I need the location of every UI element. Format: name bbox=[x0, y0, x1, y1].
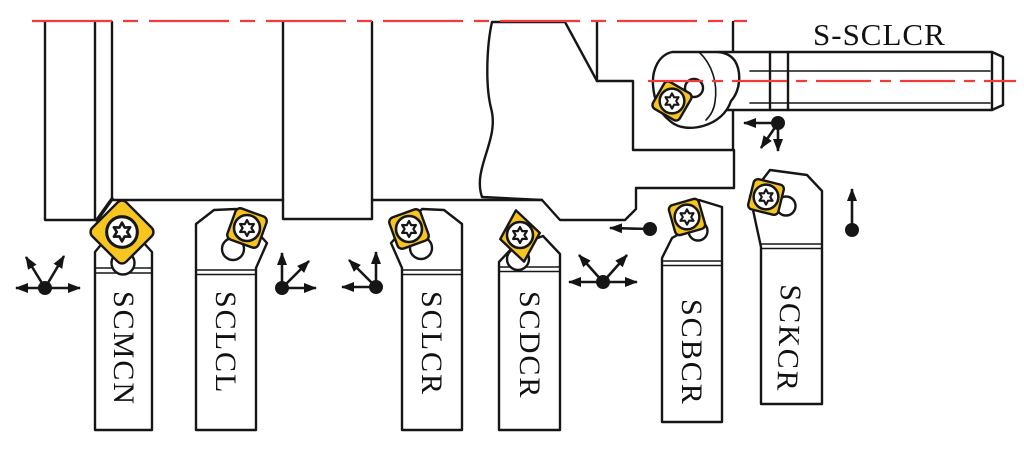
tool-label-sckcr: SCKCR bbox=[770, 284, 807, 393]
torx-screw-icon bbox=[234, 215, 260, 241]
tool-scdcr: SCDCR bbox=[496, 207, 560, 430]
feed-arrows-scmcn bbox=[16, 256, 80, 295]
tool-sckcr: SCKCR bbox=[747, 170, 822, 404]
tool-label-sclcl: SCLCL bbox=[209, 291, 242, 394]
torx-screw-icon bbox=[660, 89, 685, 114]
workpiece-section bbox=[45, 22, 734, 220]
tool-label-sclcr: SCLCR bbox=[415, 291, 448, 396]
feed-arrows-sclcr bbox=[342, 252, 383, 294]
tool-scbcr: SCBCR bbox=[662, 198, 722, 422]
boring-bar-ssclcr bbox=[651, 52, 1003, 128]
torx-screw-icon bbox=[107, 217, 138, 248]
tool-label-scdcr: SCDCR bbox=[513, 291, 546, 399]
feed-arrows-boring bbox=[744, 116, 785, 151]
workpiece-outline bbox=[45, 22, 542, 220]
diagram-canvas: SCMCN SCLCL SCLCR SCDCR bbox=[0, 0, 1024, 451]
tool-sclcl: SCLCL bbox=[196, 207, 268, 430]
feed-arrows-scbcr bbox=[610, 222, 657, 236]
tool-label-scmcn: SCMCN bbox=[107, 291, 140, 406]
boring-tool-caption: S-SCLCR bbox=[813, 17, 946, 52]
tool-label-scbcr: SCBCR bbox=[675, 299, 708, 406]
torx-screw-icon bbox=[396, 216, 422, 242]
torx-screw-icon bbox=[507, 222, 533, 248]
torx-screw-icon bbox=[675, 205, 700, 230]
tool-scmcn: SCMCN bbox=[88, 198, 156, 430]
tool-sclcr: SCLCR bbox=[388, 208, 462, 430]
lathe-toolholder-diagram: SCMCN SCLCL SCLCR SCDCR bbox=[0, 0, 1024, 451]
torx-screw-icon bbox=[754, 185, 779, 210]
feed-arrows-sckcr bbox=[845, 189, 859, 237]
feed-arrows-sclcl bbox=[275, 253, 316, 295]
feed-arrows-scdcr bbox=[569, 255, 637, 289]
